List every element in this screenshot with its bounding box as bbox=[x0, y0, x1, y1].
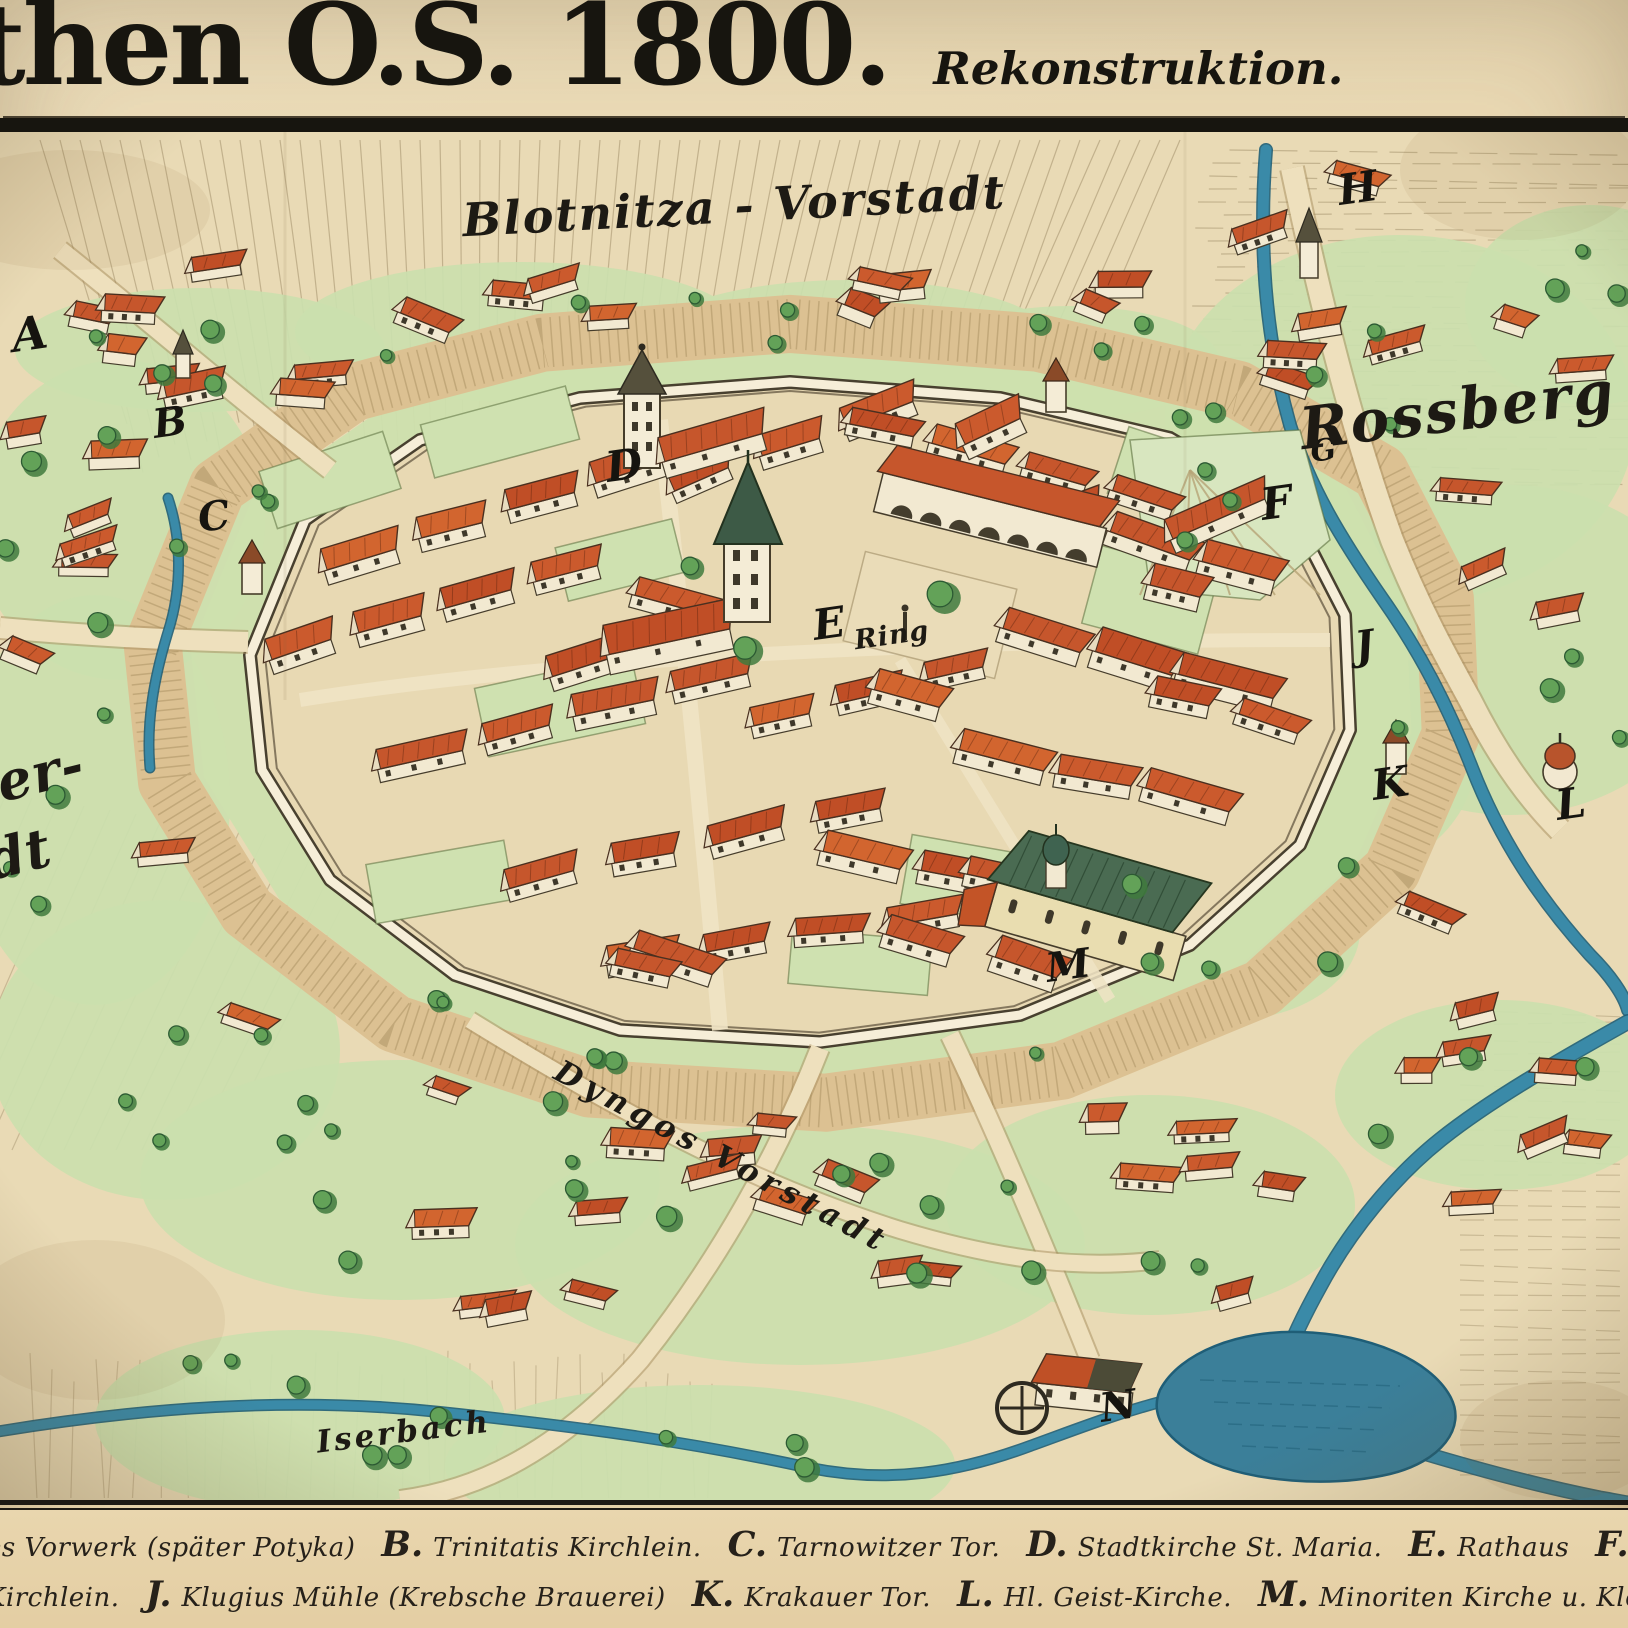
legend-text-M: Minoriten Kirche u. Kloster m. Garten -1… bbox=[1319, 1583, 1628, 1613]
legend-letter-B: B. bbox=[381, 1524, 423, 1565]
legend-letter-L: L. bbox=[957, 1574, 994, 1615]
map-bottom-border bbox=[0, 1500, 1628, 1510]
legend-text-C: Tarnowitzer Tor. bbox=[777, 1533, 1000, 1563]
legend-letter-F: F. bbox=[1595, 1524, 1628, 1565]
map-marker-B: B bbox=[149, 397, 190, 448]
historic-town-map: then O.S. 1800.Rekonstruktion. ABCDEFGHJ… bbox=[0, 0, 1628, 1628]
legend-lead-text: Kirchlein. bbox=[0, 1583, 120, 1613]
map-marker-M: M bbox=[1041, 939, 1095, 992]
title-subtitle: Rekonstruktion. bbox=[933, 42, 1343, 95]
birdseye-map-illustration: ABCDEFGHJKLMNBlotnitza - VorstadtRossber… bbox=[0, 132, 1628, 1500]
legend-letter-M: M. bbox=[1258, 1574, 1309, 1615]
legend-text-E: Rathaus bbox=[1457, 1533, 1569, 1563]
legend: es Vorwerk (später Potyka)B.Trinitatis K… bbox=[0, 1510, 1628, 1628]
legend-letter-D: D. bbox=[1026, 1524, 1067, 1565]
legend-letter-J: J. bbox=[146, 1574, 172, 1615]
legend-text-B: Trinitatis Kirchlein. bbox=[433, 1533, 701, 1563]
title-bar: then O.S. 1800.Rekonstruktion. bbox=[0, 0, 1628, 118]
legend-letter-K: K. bbox=[692, 1574, 735, 1615]
map-marker-H: H bbox=[1334, 161, 1382, 215]
legend-text-D: Stadtkirche St. Maria. bbox=[1078, 1533, 1383, 1563]
map-area: ABCDEFGHJKLMNBlotnitza - VorstadtRossber… bbox=[0, 132, 1628, 1500]
legend-letter-E: E. bbox=[1408, 1524, 1447, 1565]
legend-text-J: Klugius Mühle (Krebsche Brauerei) bbox=[182, 1583, 666, 1613]
map-marker-N: N bbox=[1095, 1380, 1141, 1432]
legend-line-2: Kirchlein.J.Klugius Mühle (Krebsche Brau… bbox=[0, 1570, 1628, 1620]
map-marker-C: C bbox=[195, 491, 233, 542]
title-divider bbox=[0, 118, 1628, 132]
title-main: then O.S. 1800. bbox=[0, 0, 889, 111]
map-marker-D: D bbox=[602, 438, 646, 492]
legend-letter-C: C. bbox=[728, 1524, 767, 1565]
legend-text-L: Hl. Geist-Kirche. bbox=[1004, 1583, 1232, 1613]
legend-text-K: Krakauer Tor. bbox=[744, 1583, 931, 1613]
legend-lead-text: es Vorwerk (später Potyka) bbox=[0, 1533, 355, 1563]
legend-line-1: es Vorwerk (später Potyka)B.Trinitatis K… bbox=[0, 1520, 1628, 1570]
page-title: then O.S. 1800.Rekonstruktion. bbox=[0, 0, 1343, 118]
